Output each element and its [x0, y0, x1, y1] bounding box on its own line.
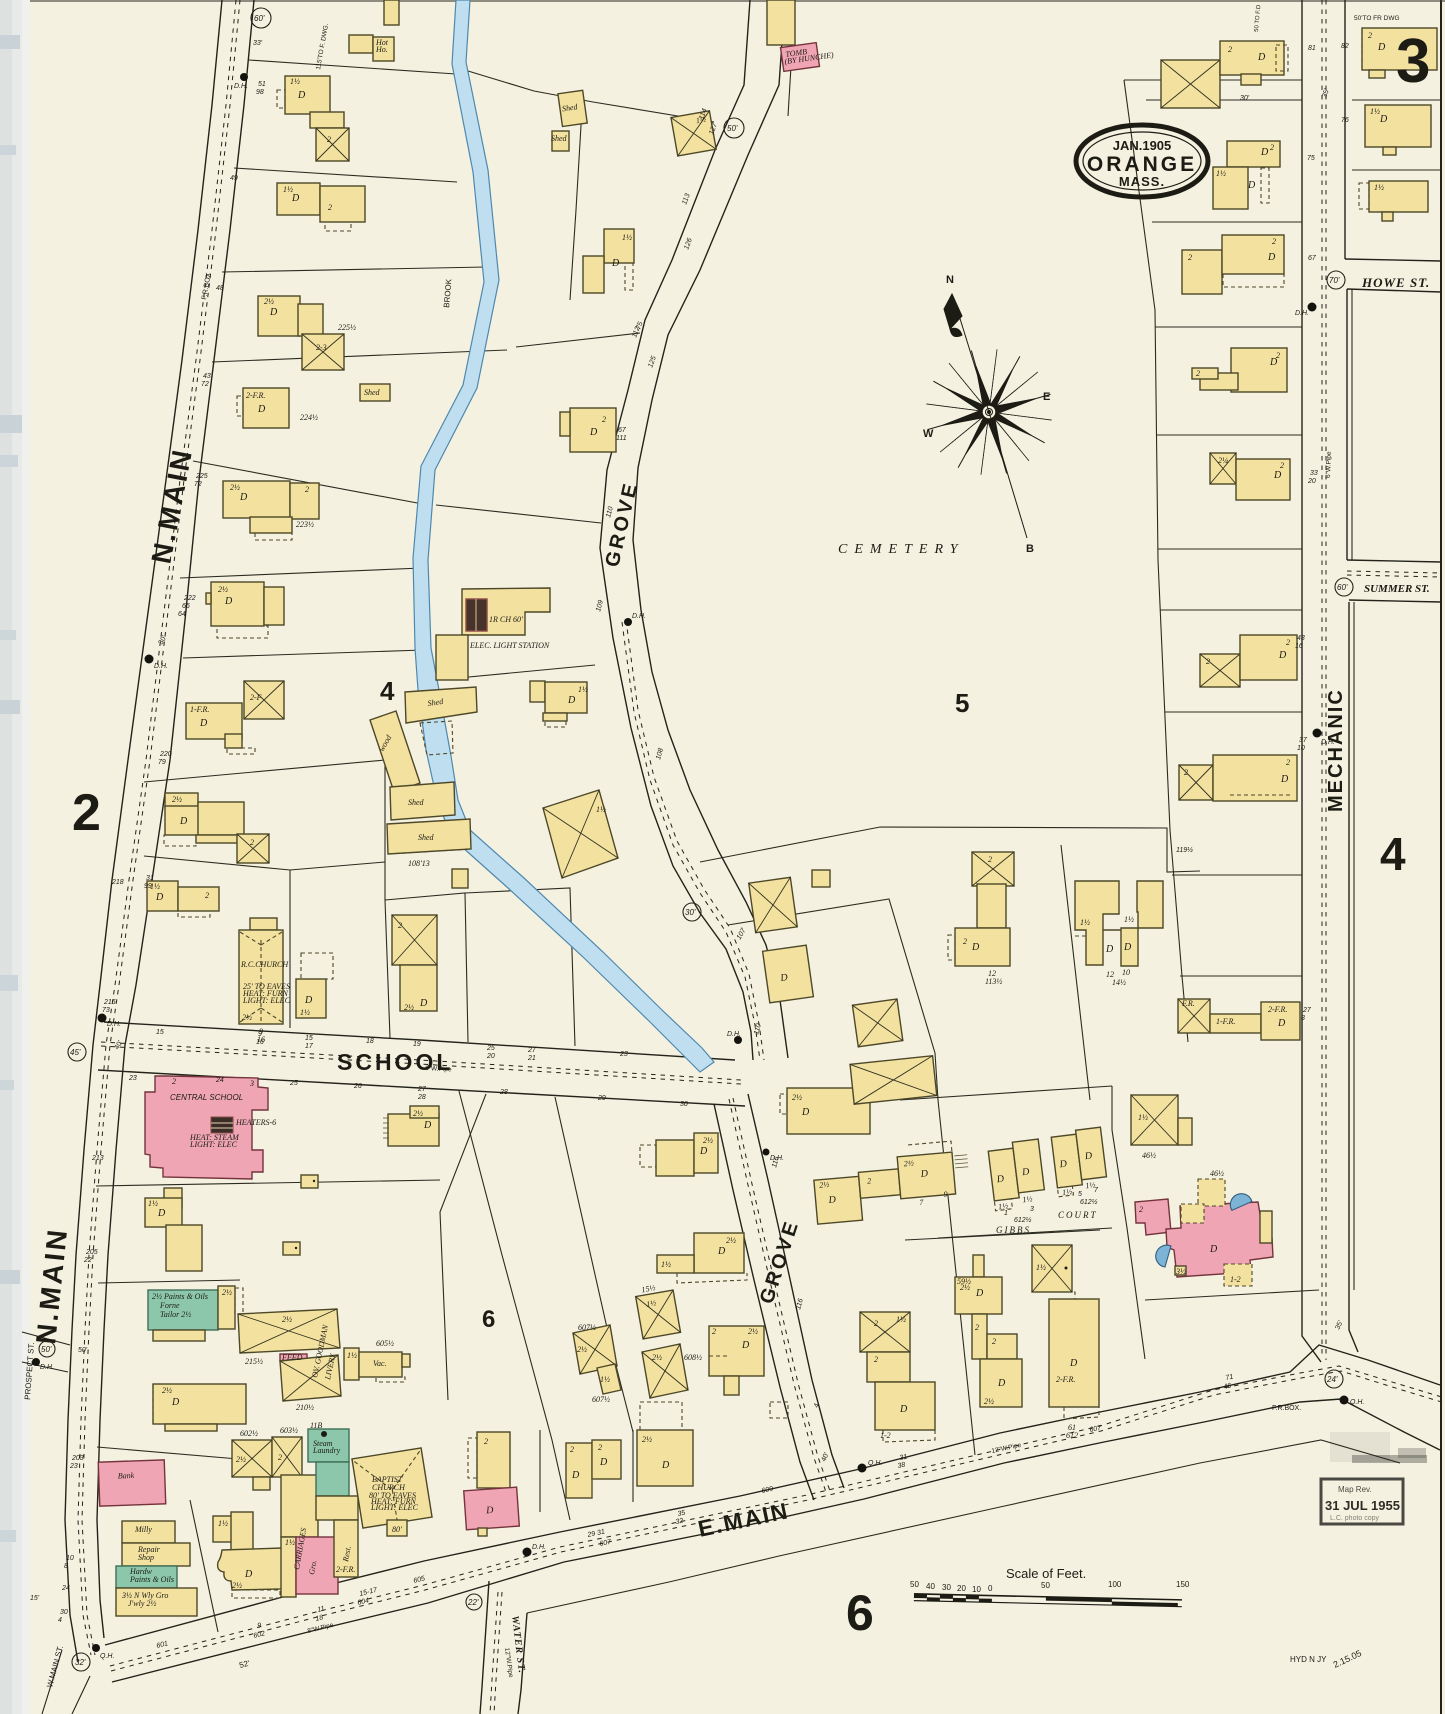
svg-text:Tailor 2½: Tailor 2½: [160, 1310, 191, 1319]
svg-text:205: 205: [85, 1249, 98, 1256]
svg-text:D: D: [611, 258, 620, 269]
svg-text:1½: 1½: [1374, 183, 1384, 192]
svg-text:D: D: [661, 1460, 670, 1471]
svg-text:98: 98: [256, 89, 264, 96]
svg-text:1½: 1½: [1036, 1263, 1046, 1272]
svg-text:5: 5: [1078, 1191, 1082, 1198]
svg-text:1½: 1½: [148, 1199, 158, 1208]
svg-text:81: 81: [1308, 45, 1316, 52]
svg-text:31 JUL 1955: 31 JUL 1955: [1325, 1498, 1400, 1513]
svg-text:HEATERS-6: HEATERS-6: [235, 1118, 276, 1127]
svg-text:D: D: [199, 718, 208, 729]
svg-text:Q.H.: Q.H.: [1350, 1399, 1364, 1406]
svg-text:37: 37: [1299, 737, 1308, 744]
svg-text:Forne: Forne: [159, 1301, 180, 1310]
svg-text:2: 2: [278, 1453, 282, 1462]
svg-text:2: 2: [570, 1445, 574, 1454]
svg-text:1½: 1½: [1022, 1194, 1033, 1204]
svg-text:15': 15': [30, 1595, 40, 1602]
svg-text:2: 2: [1188, 253, 1192, 262]
svg-text:2½: 2½: [642, 1435, 652, 1444]
svg-text:L.C. photo copy: L.C. photo copy: [1330, 1515, 1380, 1522]
svg-text:46½: 46½: [1210, 1169, 1224, 1178]
svg-text:2½: 2½: [230, 483, 240, 492]
svg-text:16: 16: [1295, 643, 1303, 650]
svg-text:222: 222: [183, 595, 196, 602]
svg-text:27: 27: [527, 1047, 537, 1054]
svg-text:113½: 113½: [985, 977, 1002, 986]
svg-text:1½: 1½: [622, 233, 632, 242]
svg-text:17: 17: [305, 1043, 314, 1050]
svg-text:D.H.: D.H.: [40, 1364, 54, 1371]
svg-text:ELEC. LIGHT STATION: ELEC. LIGHT STATION: [469, 641, 550, 650]
svg-text:70': 70': [1329, 276, 1340, 285]
svg-text:76: 76: [1341, 117, 1349, 124]
svg-text:10: 10: [1122, 968, 1130, 977]
svg-text:2-3: 2-3: [316, 343, 327, 352]
svg-text:46½: 46½: [1142, 1151, 1156, 1160]
svg-text:2½: 2½: [404, 1003, 414, 1012]
svg-text:1½: 1½: [896, 1315, 906, 1324]
svg-text:2: 2: [398, 921, 402, 930]
svg-text:2: 2: [1184, 768, 1188, 777]
svg-text:22: 22: [83, 1257, 92, 1264]
svg-text:213: 213: [91, 1155, 104, 1162]
svg-text:45': 45': [70, 1048, 81, 1057]
svg-text:2: 2: [205, 891, 209, 900]
svg-text:D.H.: D.H.: [1295, 310, 1309, 317]
svg-text:15: 15: [305, 1035, 313, 1042]
svg-text:215: 215: [103, 999, 116, 1006]
svg-text:612½: 612½: [1080, 1198, 1098, 1206]
svg-text:D: D: [485, 1505, 495, 1517]
svg-text:D: D: [179, 816, 188, 827]
svg-text:FEED: FEED: [281, 1353, 303, 1362]
svg-text:1-2: 1-2: [880, 1431, 891, 1440]
svg-text:10: 10: [66, 1555, 74, 1562]
svg-text:1½: 1½: [347, 1351, 357, 1360]
svg-text:607½: 607½: [578, 1323, 596, 1332]
svg-text:1½: 1½: [300, 1008, 310, 1017]
svg-text:MECHANIC: MECHANIC: [1325, 688, 1347, 812]
svg-text:8: 8: [64, 1563, 68, 1570]
svg-text:D: D: [1069, 1358, 1078, 1369]
svg-text:D: D: [975, 1288, 984, 1299]
svg-text:1½: 1½: [578, 685, 588, 694]
svg-text:D: D: [1273, 470, 1282, 481]
svg-text:LIGHT: ELEC: LIGHT: ELEC: [242, 996, 291, 1005]
svg-text:1½: 1½: [661, 1260, 671, 1269]
svg-text:E: E: [1043, 391, 1050, 403]
svg-text:2: 2: [867, 1176, 872, 1185]
svg-text:D: D: [1277, 1018, 1286, 1029]
svg-text:20: 20: [957, 1584, 966, 1593]
svg-text:F.R.: F.R.: [1181, 999, 1195, 1008]
svg-text:605½: 605½: [376, 1339, 394, 1348]
svg-text:50': 50': [41, 1345, 52, 1354]
svg-text:2: 2: [1276, 351, 1280, 360]
svg-text:CENTRAL SCHOOL: CENTRAL SCHOOL: [170, 1093, 243, 1102]
svg-text:D: D: [1247, 180, 1256, 191]
svg-text:2½: 2½: [222, 1288, 232, 1297]
svg-text:D: D: [567, 695, 576, 706]
svg-text:D: D: [155, 892, 164, 903]
svg-text:2½: 2½: [819, 1180, 830, 1190]
svg-text:Shed: Shed: [551, 134, 568, 143]
svg-text:602½: 602½: [240, 1429, 258, 1438]
svg-text:2: 2: [250, 838, 254, 847]
svg-text:D: D: [589, 427, 598, 438]
svg-text:23: 23: [619, 1051, 628, 1058]
svg-text:2: 2: [484, 1437, 488, 1446]
svg-text:2: 2: [1206, 657, 1210, 666]
svg-text:19: 19: [413, 1041, 421, 1048]
svg-text:220: 220: [159, 751, 172, 758]
svg-text:29: 29: [597, 1095, 606, 1102]
svg-text:2½: 2½: [282, 1315, 292, 1324]
svg-text:D: D: [239, 492, 248, 503]
svg-text:HOWE ST.: HOWE ST.: [1361, 275, 1430, 290]
svg-text:D: D: [599, 1457, 608, 1468]
svg-text:10: 10: [972, 1585, 981, 1594]
svg-text:33': 33': [253, 40, 263, 47]
svg-text:2: 2: [992, 1337, 996, 1346]
svg-text:Laundry: Laundry: [312, 1446, 341, 1455]
svg-text:150: 150: [1176, 1580, 1190, 1589]
svg-text:203: 203: [71, 1455, 84, 1462]
svg-text:2: 2: [1286, 638, 1290, 647]
svg-text:2½: 2½: [726, 1236, 736, 1245]
svg-text:14½: 14½: [1112, 978, 1126, 987]
svg-text:20: 20: [1307, 478, 1316, 485]
svg-text:JAN.1905: JAN.1905: [1113, 138, 1172, 153]
svg-text:50'TO FR DWG: 50'TO FR DWG: [1354, 15, 1400, 22]
svg-text:2: 2: [602, 415, 606, 424]
svg-text:D.H.: D.H.: [107, 1021, 121, 1028]
svg-text:4: 4: [380, 676, 395, 706]
svg-text:Shed: Shed: [364, 388, 381, 397]
svg-text:2: 2: [1196, 369, 1200, 378]
svg-text:25: 25: [289, 1080, 298, 1087]
svg-text:100: 100: [1108, 1580, 1122, 1589]
svg-text:Scale of Feet.: Scale of Feet.: [1006, 1566, 1086, 1581]
svg-text:99: 99: [144, 883, 152, 890]
svg-text:D: D: [257, 404, 266, 415]
svg-text:27: 27: [417, 1086, 427, 1093]
svg-text:2: 2: [712, 1327, 716, 1336]
svg-text:D.H.: D.H.: [727, 1031, 741, 1038]
svg-text:2: 2: [305, 485, 309, 494]
svg-text:73: 73: [102, 1007, 110, 1014]
svg-text:D: D: [171, 1397, 180, 1408]
svg-text:21: 21: [527, 1055, 536, 1062]
svg-text:Shed: Shed: [408, 798, 425, 807]
svg-text:2½: 2½: [162, 1386, 172, 1395]
svg-text:MASS.: MASS.: [1119, 174, 1165, 189]
svg-text:2: 2: [1270, 143, 1274, 152]
svg-text:R.C.CHURCH: R.C.CHURCH: [240, 960, 289, 969]
svg-text:24': 24': [1326, 1375, 1338, 1384]
svg-text:Q.H.: Q.H.: [100, 1653, 114, 1660]
svg-text:D: D: [224, 596, 233, 607]
svg-text:108'13: 108'13: [408, 859, 430, 868]
svg-text:31: 31: [146, 875, 154, 882]
svg-text:43: 43: [203, 373, 211, 380]
svg-text:2½: 2½: [652, 1353, 662, 1362]
svg-text:24: 24: [61, 1585, 70, 1592]
svg-text:D.H.: D.H.: [532, 1544, 546, 1551]
svg-text:82: 82: [1341, 43, 1349, 50]
svg-text:10: 10: [1297, 745, 1305, 752]
svg-text:B: B: [1026, 543, 1034, 555]
svg-text:1½: 1½: [645, 1298, 656, 1309]
svg-text:603½: 603½: [280, 1426, 298, 1435]
svg-text:W: W: [923, 428, 934, 440]
svg-text:43: 43: [1297, 635, 1305, 642]
svg-text:215½: 215½: [245, 1357, 263, 1366]
svg-text:2½: 2½: [264, 297, 274, 306]
svg-text:D: D: [419, 998, 428, 1009]
svg-text:9: 9: [943, 1190, 948, 1199]
svg-text:50: 50: [1041, 1581, 1050, 1590]
svg-text:D: D: [1379, 114, 1388, 125]
svg-text:2: 2: [172, 1077, 176, 1086]
svg-text:2: 2: [874, 1355, 878, 1364]
svg-text:26: 26: [353, 1083, 362, 1090]
svg-text:28: 28: [499, 1089, 508, 1096]
svg-text:D: D: [971, 942, 980, 953]
svg-text:2: 2: [874, 1319, 878, 1328]
svg-text:218: 218: [111, 879, 124, 886]
svg-text:2-F: 2-F: [250, 693, 262, 702]
svg-text:D: D: [291, 193, 300, 204]
svg-text:D: D: [1377, 42, 1386, 53]
svg-text:30: 30: [942, 1583, 951, 1592]
svg-text:67: 67: [1308, 255, 1317, 262]
svg-text:Q.H.: Q.H.: [868, 1460, 882, 1467]
svg-text:30': 30': [1240, 95, 1250, 102]
svg-text:2½: 2½: [172, 795, 182, 804]
svg-text:111: 111: [616, 435, 627, 442]
svg-text:40: 40: [926, 1582, 935, 1591]
svg-text:D.H.: D.H.: [234, 83, 248, 90]
svg-text:D: D: [1257, 52, 1266, 63]
svg-text:22': 22': [467, 1598, 479, 1607]
svg-text:2½: 2½: [703, 1136, 713, 1145]
svg-text:2½: 2½: [748, 1327, 758, 1336]
svg-text:GIBBS: GIBBS: [996, 1225, 1031, 1235]
svg-text:612½: 612½: [1014, 1216, 1032, 1224]
svg-text:8: 8: [1301, 1015, 1305, 1022]
svg-text:28: 28: [417, 1094, 426, 1101]
svg-text:D: D: [244, 1569, 253, 1580]
svg-text:66: 66: [182, 603, 190, 610]
svg-text:50': 50': [78, 1347, 88, 1354]
svg-text:59½: 59½: [957, 1277, 971, 1286]
svg-text:30: 30: [680, 1101, 688, 1108]
svg-text:J'wly 2½: J'wly 2½: [128, 1599, 156, 1608]
svg-text:72: 72: [194, 481, 202, 488]
svg-text:D: D: [304, 995, 313, 1006]
svg-text:16: 16: [256, 1039, 264, 1046]
svg-text:23: 23: [128, 1075, 137, 1082]
svg-text:ORANGE: ORANGE: [1087, 153, 1197, 176]
svg-text:4: 4: [1380, 828, 1406, 880]
svg-text:2½: 2½: [242, 1013, 252, 1022]
svg-text:2: 2: [1139, 1205, 1143, 1214]
svg-text:1½: 1½: [596, 805, 606, 814]
svg-text:50: 50: [910, 1580, 919, 1589]
svg-text:5: 5: [955, 688, 969, 718]
svg-text:D.H.: D.H.: [1321, 739, 1335, 746]
svg-text:2: 2: [975, 1323, 979, 1332]
svg-text:D: D: [269, 307, 278, 318]
svg-text:30: 30: [60, 1609, 68, 1616]
svg-text:23: 23: [69, 1463, 78, 1470]
svg-text:LIGHT: ELEC: LIGHT: ELEC: [370, 1503, 419, 1512]
svg-text:2: 2: [1228, 45, 1232, 54]
svg-text:D: D: [157, 1208, 166, 1219]
svg-text:Map Rev.: Map Rev.: [1338, 1485, 1372, 1494]
svg-text:1½: 1½: [1370, 107, 1380, 116]
svg-text:2: 2: [963, 937, 967, 946]
svg-text:24: 24: [215, 1077, 224, 1084]
svg-text:2: 2: [1272, 237, 1276, 246]
svg-text:1½: 1½: [600, 1375, 610, 1384]
svg-text:1½: 1½: [283, 185, 293, 194]
svg-text:2: 2: [1280, 461, 1284, 470]
svg-text:1-F.R.: 1-F.R.: [190, 705, 209, 714]
svg-text:1½: 1½: [285, 1538, 295, 1547]
svg-text:72: 72: [201, 381, 209, 388]
svg-text:Bank: Bank: [118, 1471, 135, 1481]
svg-text:2: 2: [988, 855, 992, 864]
svg-text:612: 612: [1066, 1431, 1078, 1440]
svg-text:33: 33: [1310, 470, 1318, 477]
svg-text:1½: 1½: [1138, 1113, 1148, 1122]
svg-text:2½: 2½: [577, 1345, 587, 1354]
svg-text:N: N: [946, 274, 954, 286]
svg-text:SUMMER ST.: SUMMER ST.: [1364, 583, 1430, 595]
svg-text:119½: 119½: [1176, 846, 1193, 854]
svg-text:D: D: [1105, 944, 1114, 955]
svg-text:225½: 225½: [338, 323, 356, 332]
svg-text:2: 2: [327, 135, 331, 144]
svg-text:Milly: Milly: [134, 1525, 152, 1534]
svg-text:2: 2: [1368, 31, 1372, 40]
svg-text:D: D: [1260, 147, 1269, 158]
svg-text:2-F.R.: 2-F.R.: [246, 391, 265, 400]
svg-text:F.R.BOX.: F.R.BOX.: [1272, 1405, 1301, 1412]
svg-text:18: 18: [366, 1038, 374, 1045]
svg-text:2½: 2½: [903, 1158, 914, 1168]
svg-text:2½: 2½: [218, 585, 228, 594]
svg-text:D.H.: D.H.: [154, 663, 168, 670]
svg-text:CEMETERY: CEMETERY: [838, 542, 965, 557]
svg-text:2½ Paints & Oils: 2½ Paints & Oils: [152, 1292, 208, 1301]
svg-text:Shop: Shop: [138, 1553, 154, 1562]
svg-text:D: D: [297, 90, 306, 101]
svg-text:2¼: 2¼: [1218, 456, 1228, 465]
svg-text:49: 49: [230, 175, 238, 182]
svg-text:D: D: [423, 1120, 432, 1131]
svg-text:50': 50': [727, 124, 738, 133]
svg-text:75: 75: [1307, 155, 1315, 162]
svg-text:2½: 2½: [236, 1455, 246, 1464]
svg-text:2-F.R.: 2-F.R.: [336, 1565, 355, 1574]
svg-text:D: D: [571, 1470, 580, 1481]
svg-text:HYD N JY: HYD N JY: [1290, 1655, 1327, 1664]
svg-text:D: D: [899, 1404, 908, 1415]
svg-text:6"W.Pipe: 6"W.Pipe: [425, 1065, 452, 1073]
svg-text:1½: 1½: [1080, 918, 1090, 927]
svg-text:60': 60': [1337, 583, 1348, 592]
svg-text:1½: 1½: [1216, 169, 1226, 178]
svg-text:D: D: [801, 1107, 810, 1118]
svg-text:D: D: [717, 1246, 726, 1257]
svg-text:51: 51: [258, 81, 266, 88]
svg-text:D: D: [1209, 1244, 1218, 1255]
svg-text:2-F.R.: 2-F.R.: [1056, 1375, 1075, 1384]
svg-text:223½: 223½: [296, 520, 314, 529]
svg-text:30': 30': [685, 908, 696, 917]
svg-text:27: 27: [1302, 1007, 1312, 1014]
svg-text:15: 15: [156, 1029, 164, 1036]
svg-text:11B: 11B: [310, 1421, 322, 1430]
svg-text:6: 6: [482, 1306, 495, 1333]
svg-text:9: 9: [258, 1031, 262, 1038]
svg-text:1-2: 1-2: [1230, 1275, 1241, 1284]
svg-text:2: 2: [72, 784, 101, 842]
svg-text:1½: 1½: [218, 1519, 228, 1528]
svg-text:D: D: [1280, 774, 1289, 785]
svg-text:2½: 2½: [232, 1581, 242, 1590]
svg-text:Vac.: Vac.: [373, 1359, 387, 1368]
svg-text:67: 67: [618, 427, 627, 434]
svg-text:D.H.: D.H.: [632, 613, 646, 620]
svg-text:2½: 2½: [984, 1397, 994, 1406]
svg-text:2½: 2½: [792, 1093, 802, 1102]
svg-text:3½: 3½: [1175, 1267, 1186, 1276]
svg-text:25: 25: [486, 1045, 495, 1052]
svg-text:2½: 2½: [413, 1109, 423, 1118]
svg-text:225: 225: [195, 473, 208, 480]
svg-text:3: 3: [249, 1079, 254, 1088]
svg-text:79: 79: [158, 759, 166, 766]
svg-text:607½: 607½: [592, 1395, 610, 1404]
svg-text:Shed: Shed: [418, 833, 435, 842]
svg-text:D: D: [997, 1378, 1006, 1389]
svg-text:Ho.: Ho.: [375, 45, 388, 54]
svg-text:D: D: [741, 1340, 750, 1351]
svg-text:LIGHT: ELEC: LIGHT: ELEC: [189, 1140, 238, 1149]
svg-text:64: 64: [178, 611, 186, 618]
svg-text:D: D: [1123, 942, 1132, 953]
svg-text:2-F.R.: 2-F.R.: [1268, 1005, 1287, 1014]
svg-text:D: D: [1267, 252, 1276, 263]
svg-text:1½: 1½: [1124, 915, 1134, 924]
svg-text:6: 6: [846, 1585, 874, 1641]
svg-text:2: 2: [328, 203, 332, 212]
svg-text:210½: 210½: [296, 1403, 314, 1412]
svg-text:2: 2: [1286, 758, 1290, 767]
svg-text:1: 1: [1004, 1210, 1008, 1217]
svg-text:608½: 608½: [684, 1353, 702, 1362]
svg-text:1½: 1½: [290, 77, 300, 86]
svg-text:3: 3: [1030, 1206, 1034, 1213]
svg-text:48: 48: [216, 285, 224, 292]
svg-text:224½: 224½: [300, 413, 318, 422]
